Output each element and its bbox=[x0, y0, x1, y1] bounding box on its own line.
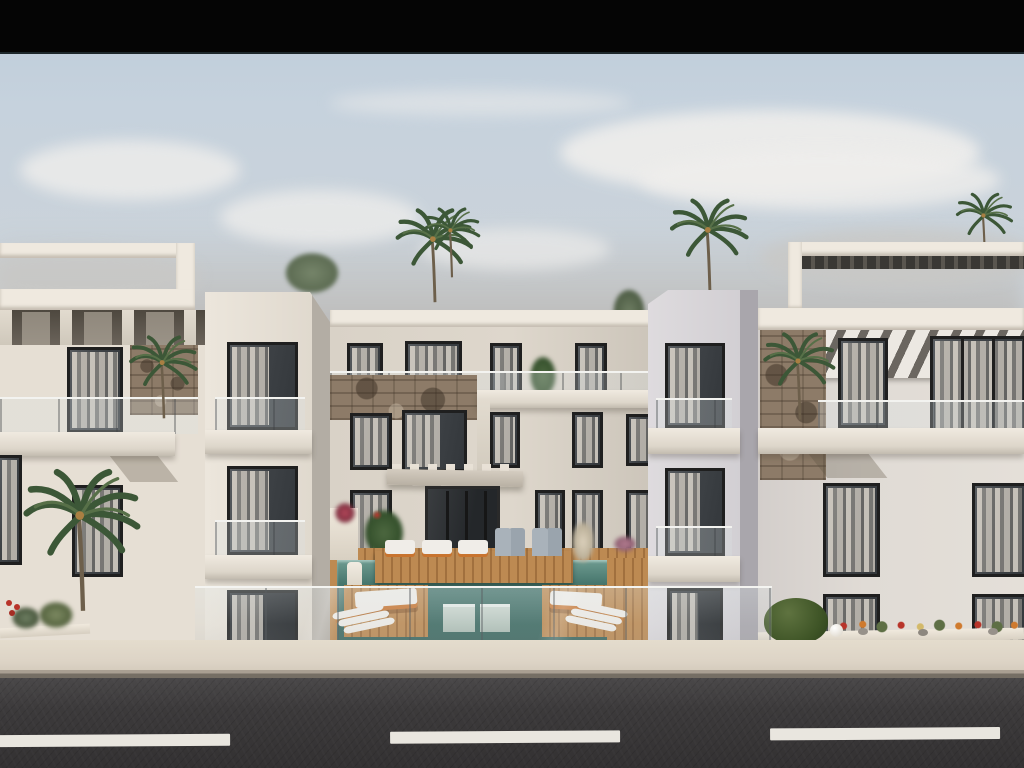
sun-lounger-gray bbox=[495, 528, 511, 556]
balcony-slab bbox=[205, 555, 312, 579]
letterbox-bar bbox=[0, 0, 1024, 54]
round-bush bbox=[764, 598, 828, 644]
cloud bbox=[330, 90, 630, 116]
entrance-canopy bbox=[387, 469, 523, 487]
balcony-slab bbox=[648, 428, 740, 454]
lane-dash bbox=[0, 734, 230, 748]
pampas-plant bbox=[568, 514, 598, 570]
window bbox=[823, 483, 880, 577]
road bbox=[0, 678, 1024, 768]
rooftop-pergola-beam bbox=[0, 243, 195, 258]
lane-marking-dashes bbox=[0, 675, 1024, 768]
palm-tree-icon bbox=[420, 190, 484, 290]
balcony-slab bbox=[205, 430, 312, 454]
roof-parapet bbox=[0, 289, 195, 310]
balcony-slab bbox=[648, 556, 740, 582]
garden-rocks bbox=[858, 628, 868, 635]
loggia-curtain bbox=[22, 312, 50, 345]
rooftop-pergola-beam bbox=[790, 242, 1024, 256]
palm-tree-icon bbox=[126, 318, 202, 430]
glass-balcony-railing bbox=[656, 526, 732, 558]
palm-tree-icon bbox=[660, 192, 760, 294]
pilaster bbox=[0, 310, 12, 345]
window bbox=[972, 483, 1024, 577]
garden-lamp-sphere bbox=[830, 624, 843, 637]
red-tulips bbox=[6, 600, 12, 606]
palm-tree-icon bbox=[760, 312, 840, 434]
roof-parapet bbox=[330, 310, 660, 327]
planter-flowers bbox=[332, 500, 358, 526]
architectural-render-scene bbox=[0, 0, 1024, 768]
rooftop-pergola-slats bbox=[802, 256, 1024, 269]
window bbox=[490, 412, 520, 468]
planter-agave bbox=[8, 604, 44, 632]
glass-balcony-railing bbox=[215, 520, 305, 557]
balcony-slab bbox=[477, 390, 660, 408]
glass-balcony-railing bbox=[215, 397, 305, 432]
window bbox=[350, 413, 392, 470]
right-building bbox=[758, 242, 1024, 645]
lane-dash bbox=[770, 727, 1000, 740]
loggia-curtain bbox=[84, 312, 112, 345]
rooftop-pergola-post bbox=[788, 242, 802, 310]
flower-bush bbox=[611, 534, 639, 554]
glass-fence bbox=[195, 586, 772, 648]
pilaster bbox=[60, 310, 72, 345]
lane-dash bbox=[390, 730, 620, 743]
window bbox=[402, 410, 467, 472]
sun-lounger-gray bbox=[532, 528, 548, 556]
glass-balcony-railing bbox=[656, 398, 732, 430]
sun-lounger bbox=[422, 540, 452, 554]
sun-lounger bbox=[458, 540, 488, 554]
sun-lounger bbox=[385, 540, 415, 554]
cloud bbox=[20, 140, 240, 200]
cloud bbox=[220, 190, 420, 245]
window bbox=[572, 412, 603, 468]
